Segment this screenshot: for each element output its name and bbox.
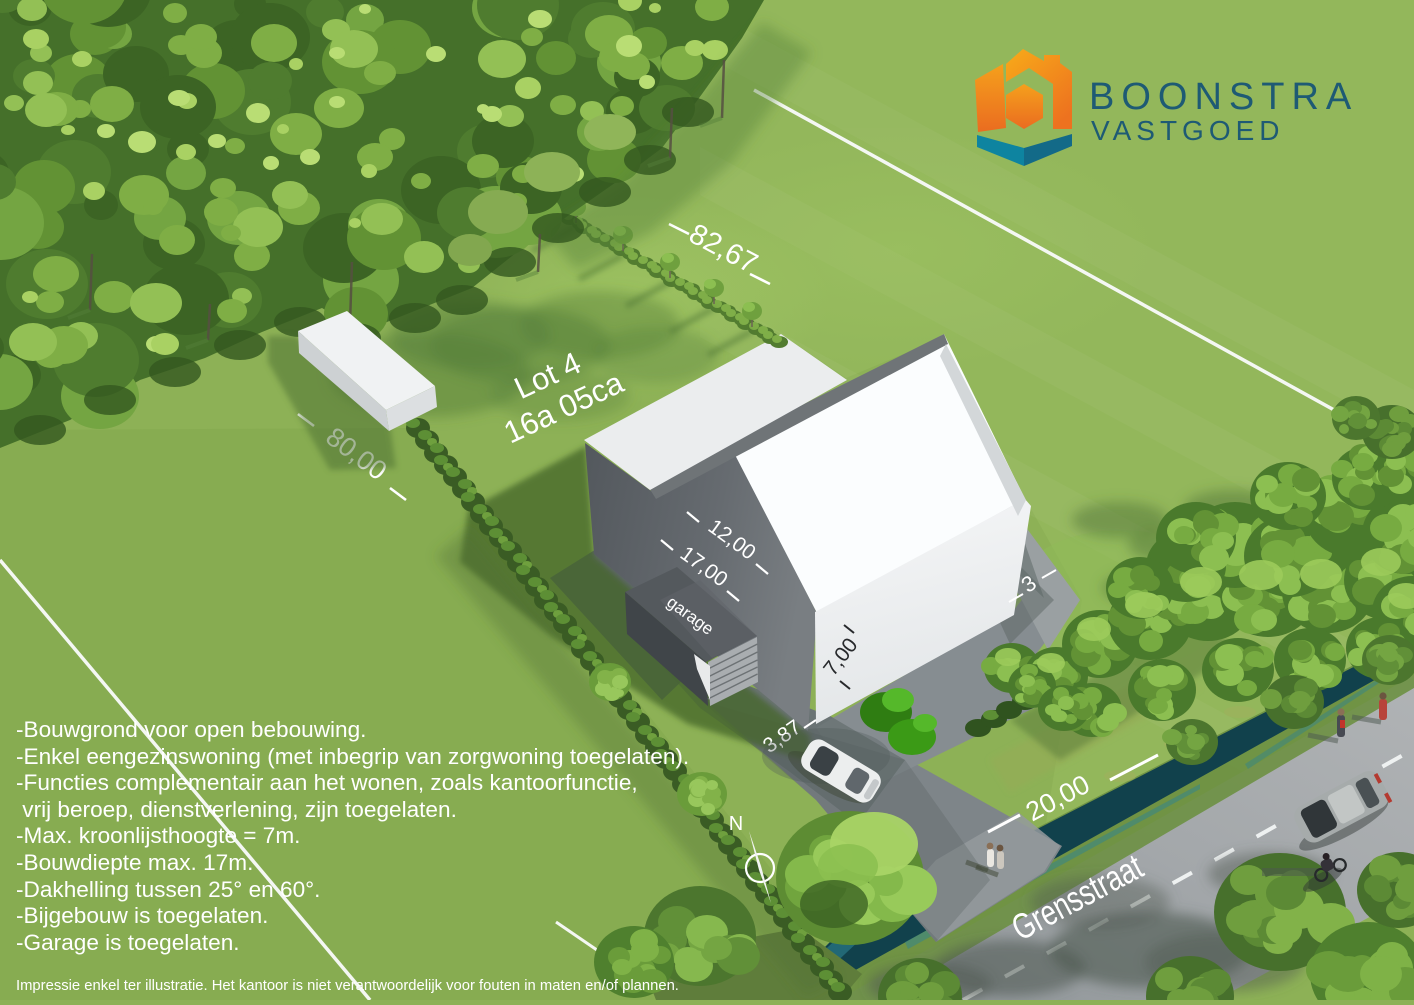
svg-text:BOONSTRA: BOONSTRA xyxy=(1089,76,1358,118)
svg-text:-Enkel eengezinswoning (met in: -Enkel eengezinswoning (met inbegrip van… xyxy=(16,744,689,769)
svg-text:-Dakhelling tussen 25° en 60°.: -Dakhelling tussen 25° en 60°. xyxy=(16,877,320,902)
svg-text:-Bouwdiepte max. 17m.: -Bouwdiepte max. 17m. xyxy=(16,850,253,875)
svg-text:-Bijgebouw is toegelaten.: -Bijgebouw is toegelaten. xyxy=(16,903,268,928)
svg-text:VASTGOED: VASTGOED xyxy=(1091,115,1285,146)
svg-text:N: N xyxy=(729,813,743,835)
svg-text:-Functies complementair aan he: -Functies complementair aan het wonen, z… xyxy=(16,770,638,795)
svg-text:-Bouwgrond voor open bebouwing: -Bouwgrond voor open bebouwing. xyxy=(16,717,366,742)
svg-text:-Garage is toegelaten.: -Garage is toegelaten. xyxy=(16,930,240,955)
svg-text:Impressie enkel ter illustrati: Impressie enkel ter illustratie. Het kan… xyxy=(16,978,679,994)
svg-text:vrij beroep, dienstverlening,: vrij beroep, dienstverlening, zijn toege… xyxy=(16,797,457,822)
svg-text:-Max. kroonlijsthoogte = 7m.: -Max. kroonlijsthoogte = 7m. xyxy=(16,823,300,848)
